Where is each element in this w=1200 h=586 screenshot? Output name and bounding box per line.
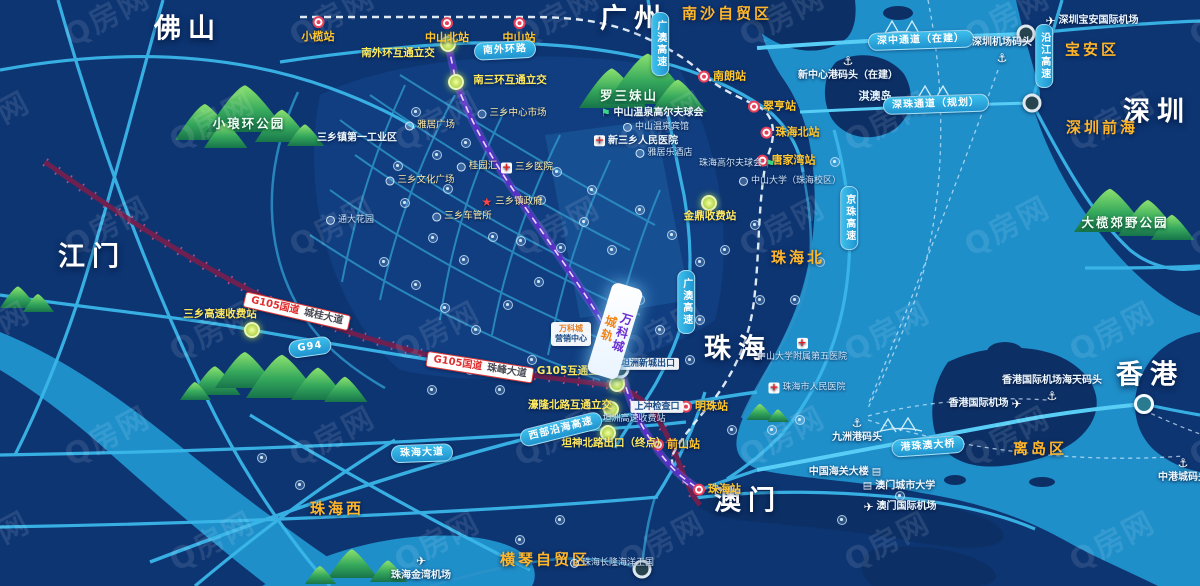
map-stage: Q房网Q房网Q房网Q房网Q房网Q房网Q房网Q房网Q房网Q房网Q房网Q房网Q房网Q… — [0, 0, 1200, 586]
map-canvas — [0, 0, 1200, 586]
featured-project-info-box: 万科城 营销中心 — [551, 322, 591, 346]
featured-info-line1: 万科城 — [555, 324, 587, 334]
featured-info-line2: 营销中心 — [555, 334, 587, 344]
